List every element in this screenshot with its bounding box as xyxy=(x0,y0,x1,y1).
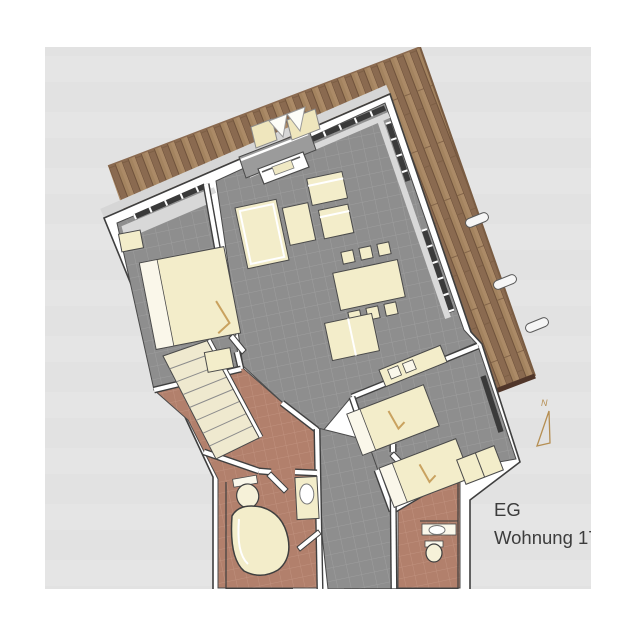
nightstand xyxy=(118,230,143,252)
toilet xyxy=(426,544,442,562)
sink-basin xyxy=(429,526,445,535)
nightstand xyxy=(204,348,233,373)
north-label: N xyxy=(541,398,548,408)
armchair xyxy=(318,204,353,239)
floor-label: EG xyxy=(494,499,521,520)
apartment-label: Wohnung 17 xyxy=(494,527,599,548)
floor-plan-page: N EG Wohnung 17 xyxy=(0,0,640,640)
